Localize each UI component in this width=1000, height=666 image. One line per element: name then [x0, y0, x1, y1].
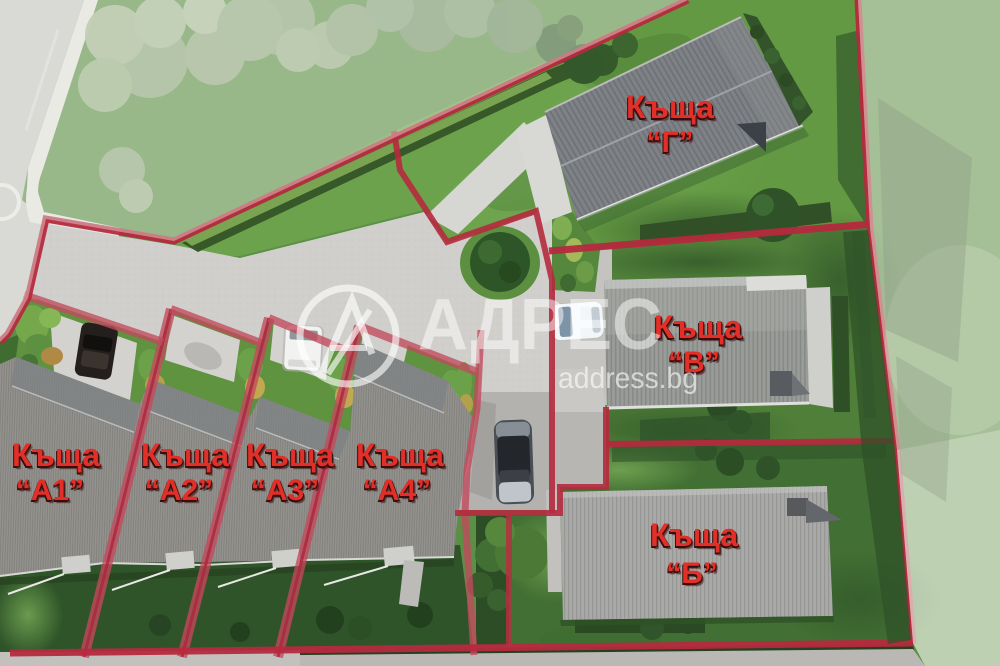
svg-text:“А3”: “А3”: [251, 474, 319, 507]
svg-text:Къща: Къща: [356, 437, 444, 473]
svg-text:Къща: Къща: [654, 309, 742, 345]
svg-text:“А4”: “А4”: [363, 474, 431, 507]
svg-text:Къща: Къща: [141, 437, 229, 473]
svg-text:“Г”: “Г”: [646, 126, 693, 159]
svg-text:Къща: Къща: [12, 437, 100, 473]
svg-text:“А2”: “А2”: [145, 474, 213, 507]
svg-text:Къща: Къща: [626, 89, 714, 125]
svg-text:“А1”: “А1”: [16, 474, 84, 507]
svg-text:Къща: Къща: [246, 437, 334, 473]
svg-text:“Б”: “Б”: [666, 557, 718, 590]
svg-text:Къща: Къща: [650, 517, 738, 553]
svg-text:АДРЕС: АДРЕС: [418, 285, 662, 365]
svg-text:address.bg: address.bg: [558, 362, 698, 395]
